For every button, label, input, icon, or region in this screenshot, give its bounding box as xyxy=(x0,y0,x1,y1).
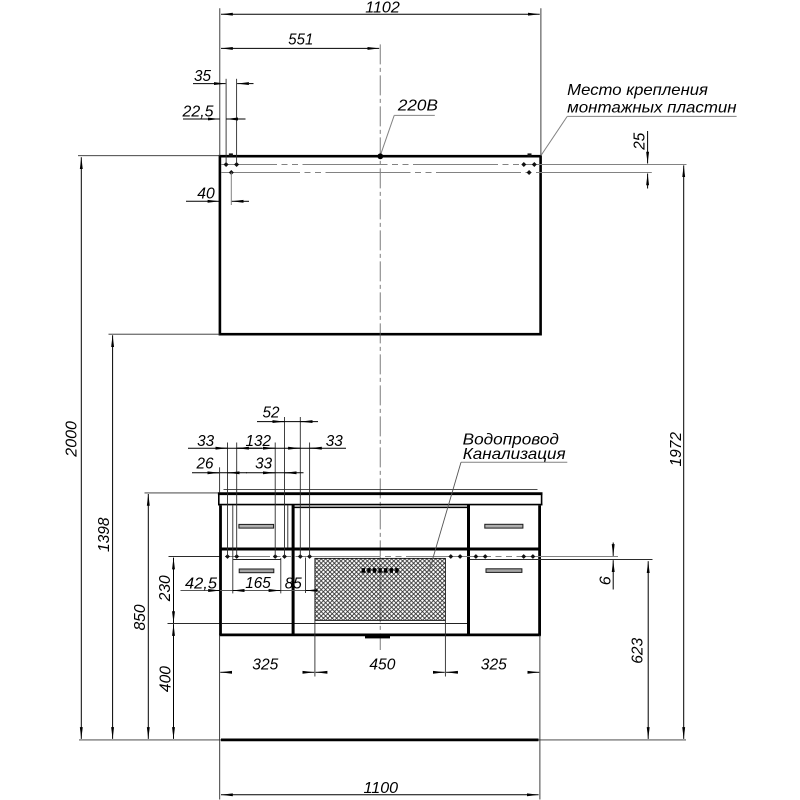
svg-text:551: 551 xyxy=(288,31,313,48)
svg-text:2000: 2000 xyxy=(63,421,80,458)
svg-text:40: 40 xyxy=(197,185,215,202)
svg-text:Канализация: Канализация xyxy=(463,446,566,463)
svg-text:52: 52 xyxy=(263,404,280,421)
svg-text:42,5: 42,5 xyxy=(185,576,217,593)
svg-text:165: 165 xyxy=(245,575,271,592)
svg-text:450: 450 xyxy=(369,657,395,674)
svg-text:монтажных пластин: монтажных пластин xyxy=(567,99,737,116)
svg-text:132: 132 xyxy=(246,433,272,450)
svg-text:25: 25 xyxy=(631,133,648,151)
svg-text:1972: 1972 xyxy=(668,432,685,467)
svg-text:1100: 1100 xyxy=(364,780,399,797)
svg-text:26: 26 xyxy=(196,456,214,473)
svg-text:1398: 1398 xyxy=(96,517,113,552)
svg-text:6: 6 xyxy=(598,576,615,585)
svg-text:85: 85 xyxy=(285,576,302,593)
svg-text:230: 230 xyxy=(157,575,174,602)
svg-text:400: 400 xyxy=(158,666,175,692)
svg-text:33: 33 xyxy=(197,433,214,450)
svg-text:325: 325 xyxy=(252,657,278,674)
svg-text:850: 850 xyxy=(132,604,149,630)
svg-text:22,5: 22,5 xyxy=(182,103,214,120)
svg-text:35: 35 xyxy=(194,68,211,85)
svg-text:33: 33 xyxy=(326,433,343,450)
svg-text:1102: 1102 xyxy=(365,0,400,17)
svg-text:623: 623 xyxy=(629,638,646,664)
svg-text:33: 33 xyxy=(255,456,272,473)
svg-text:Место крепления: Место крепления xyxy=(567,82,708,99)
svg-text:220В: 220В xyxy=(397,98,438,115)
svg-text:325: 325 xyxy=(481,657,507,674)
